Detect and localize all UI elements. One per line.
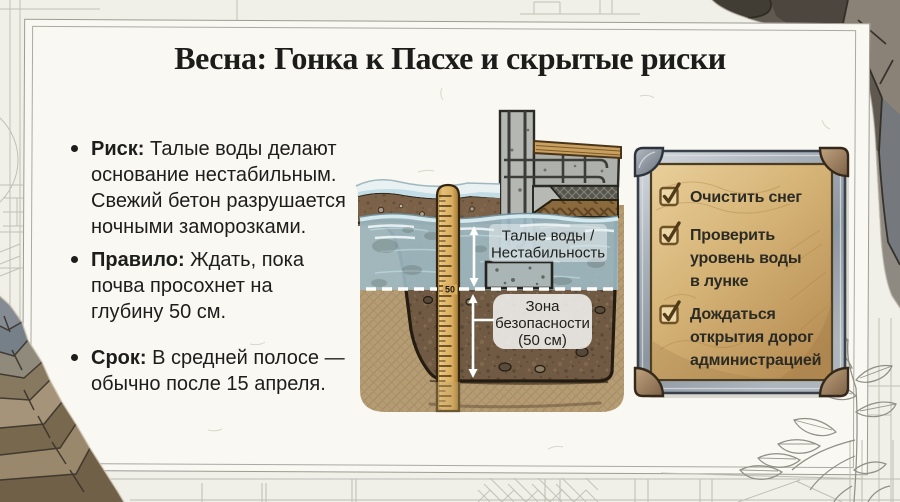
- svg-text:(50 см): (50 см): [518, 332, 567, 349]
- svg-text:50: 50: [445, 285, 455, 295]
- svg-text:Зона: Зона: [525, 298, 560, 315]
- svg-text:Талые воды /: Талые воды /: [502, 228, 595, 245]
- svg-text:безопасности: безопасности: [495, 315, 590, 332]
- svg-text:Нестабильность: Нестабильность: [491, 245, 605, 262]
